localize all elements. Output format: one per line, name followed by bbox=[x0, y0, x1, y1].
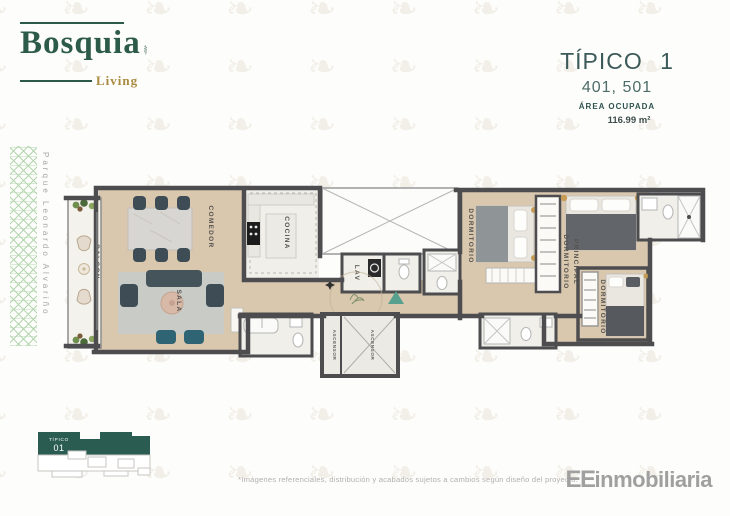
toilet bbox=[399, 265, 409, 279]
hall-bathroom bbox=[424, 250, 460, 294]
pillow bbox=[626, 277, 640, 287]
toilet bbox=[663, 205, 673, 219]
pillow bbox=[514, 210, 527, 231]
pillow bbox=[609, 277, 623, 287]
dresser bbox=[486, 268, 536, 283]
sink bbox=[642, 198, 657, 210]
room-label: ASCENSOR bbox=[370, 330, 375, 361]
room-label: LAV bbox=[353, 265, 360, 281]
unit-info: TÍPICO 1 401, 501 ÁREA OCUPADA 116.99 m² bbox=[532, 48, 702, 126]
closet bbox=[582, 272, 598, 326]
room-label: COMEDOR bbox=[207, 205, 214, 248]
kitchen-counter bbox=[248, 194, 314, 205]
unit-title: TÍPICO 1 bbox=[532, 48, 702, 75]
stove bbox=[247, 222, 260, 245]
logo-rule-living bbox=[20, 80, 92, 82]
master-bathroom bbox=[638, 194, 702, 240]
brand-tagline: Living bbox=[96, 73, 138, 89]
developer-logo-ee: EE bbox=[566, 466, 595, 493]
kitchen: COCINA bbox=[246, 190, 319, 278]
area-value: 116.99 m² bbox=[532, 115, 702, 126]
armchair bbox=[206, 284, 224, 307]
pouf bbox=[184, 330, 204, 344]
logo-rule bbox=[20, 22, 124, 24]
leaf-branch-icon bbox=[143, 28, 148, 72]
elevator-shaft: ASCENSOR ASCENSOR bbox=[322, 314, 398, 376]
air-shaft bbox=[322, 188, 458, 254]
room-label: DORMITORIO bbox=[562, 234, 569, 289]
developer-logo-name: inmobiliaria bbox=[595, 467, 712, 492]
sofa bbox=[146, 270, 202, 287]
floor-plan: BALCON COMEDOR SALA bbox=[58, 180, 710, 385]
area-label: ÁREA OCUPADA bbox=[532, 102, 702, 111]
center-bathroom bbox=[240, 314, 312, 356]
room-label: DORMITORIO bbox=[599, 279, 606, 334]
pillow bbox=[514, 237, 527, 258]
toilet bbox=[293, 333, 303, 347]
floorplan-sheet: ❧ ❧ ❧ ❧ ❧ ❧ ❧ ❧ ❧ ❧ ❧ ❧ ❧ ❧ ❧ ❧ ❧ ❧ ❧ ❧ … bbox=[0, 0, 730, 516]
key-plan: TÍPICO 01 bbox=[28, 424, 160, 486]
room-label: ASCENSOR bbox=[332, 330, 337, 361]
armchair bbox=[120, 284, 138, 307]
toilet bbox=[437, 277, 447, 290]
kitchen-island bbox=[266, 214, 296, 258]
bedroom-2: DORMITORIO bbox=[578, 268, 649, 340]
brand-name: Bosquia bbox=[20, 26, 141, 60]
toilet bbox=[521, 328, 531, 341]
sink bbox=[290, 318, 302, 327]
balcony-chair bbox=[77, 289, 91, 304]
room-label: SALA bbox=[175, 290, 182, 313]
unit-numbers: 401, 501 bbox=[532, 79, 702, 97]
pillow bbox=[602, 199, 630, 211]
keyplan-label: 01 bbox=[53, 443, 64, 453]
brand-logo: Bosquia Living bbox=[20, 22, 148, 89]
ornament-band bbox=[10, 146, 37, 346]
pouf bbox=[156, 330, 176, 344]
pillow bbox=[570, 199, 598, 211]
developer-logo: EEinmobiliaria bbox=[566, 466, 713, 494]
closet bbox=[536, 196, 560, 292]
dining-table bbox=[128, 208, 192, 250]
street-name: Parque Leonardo Alvariño bbox=[41, 152, 50, 352]
keyplan-label: TÍPICO bbox=[49, 436, 69, 442]
balcony-chair bbox=[77, 236, 91, 251]
disclaimer-text: *Imágenes referenciales, distribución y … bbox=[238, 475, 578, 484]
room-label: DORMITORIO bbox=[467, 208, 474, 263]
hall-wc bbox=[384, 254, 420, 292]
room-label: COCINA bbox=[283, 216, 290, 249]
keyplan-outline bbox=[38, 451, 150, 477]
